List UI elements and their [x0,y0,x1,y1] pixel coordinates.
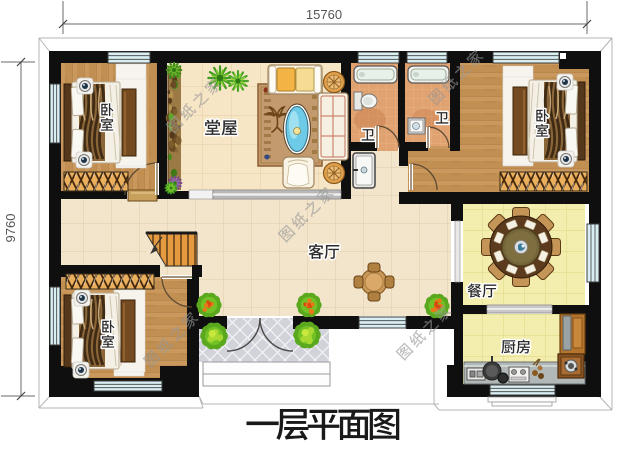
svg-text:9760: 9760 [3,214,18,243]
svg-text:15760: 15760 [306,7,342,22]
